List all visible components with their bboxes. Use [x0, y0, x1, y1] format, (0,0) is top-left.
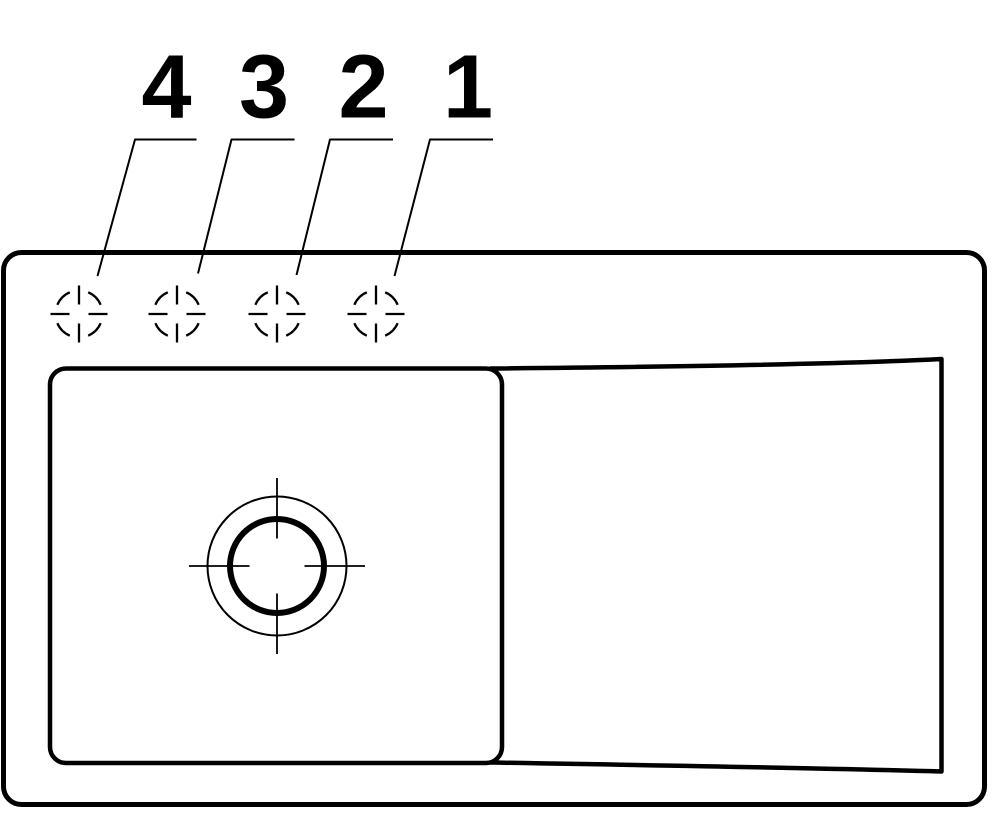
part-number-label-2: 2 [338, 38, 388, 138]
bowl-outline [50, 369, 502, 764]
part-number-label-1: 1 [443, 38, 493, 138]
part-number-labels: 4321 [141, 38, 493, 138]
bowl-rect [50, 369, 502, 764]
drawing-page: 4321 [0, 0, 992, 813]
part-number-label-3: 3 [239, 38, 289, 138]
sink-technical-drawing: 4321 [0, 0, 992, 813]
part-number-label-4: 4 [141, 38, 191, 138]
